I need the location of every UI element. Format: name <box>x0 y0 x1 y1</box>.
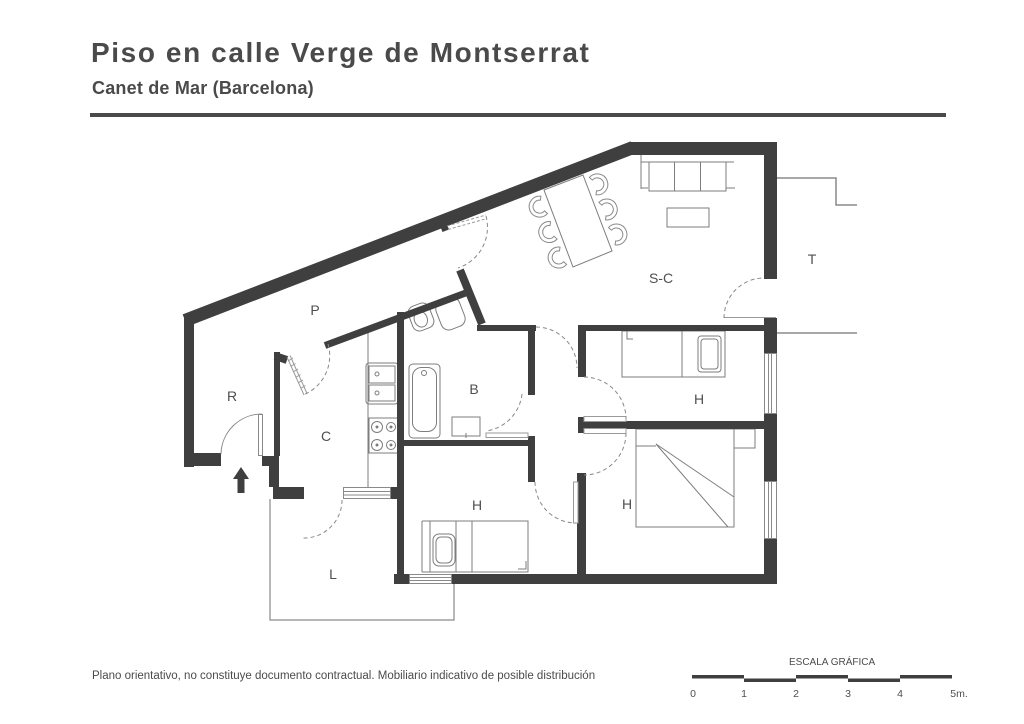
svg-text:3: 3 <box>845 688 851 700</box>
svg-text:4: 4 <box>897 688 903 700</box>
svg-text:2: 2 <box>793 688 799 700</box>
svg-text:5m.: 5m. <box>950 688 968 700</box>
svg-text:0: 0 <box>690 688 696 700</box>
svg-text:1: 1 <box>741 688 747 700</box>
